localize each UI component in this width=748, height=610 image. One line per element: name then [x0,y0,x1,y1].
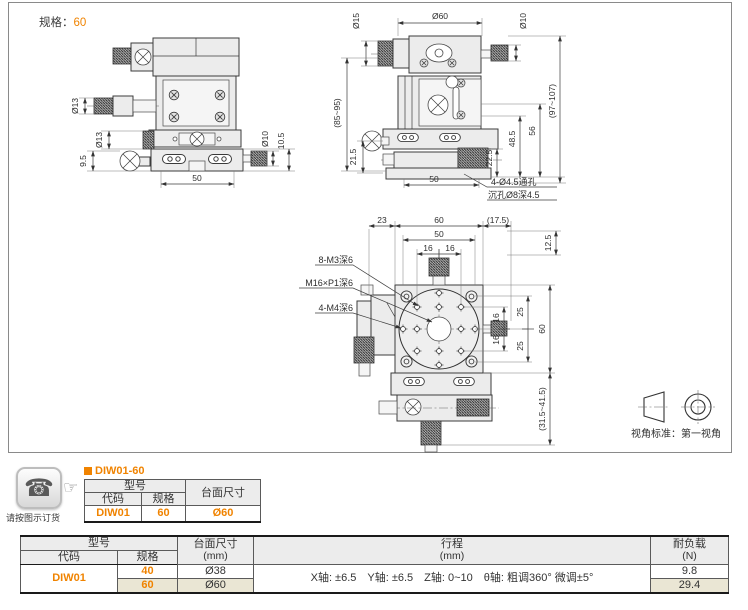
spec-header-travel-text: 行程 [441,538,463,550]
dim-12-5: 12.5 [543,234,553,251]
drawing-area: 规格：60 [8,2,732,453]
order-header-size: 台面尺寸 [186,480,261,506]
travel-value: X轴: ±6.5 Y轴: ±6.5 Z轴: 0~10 θ轴: 粗调360° 微调… [254,564,651,593]
order-spec-value: 60 [142,506,186,522]
phone-order-icon: ☎ [16,467,62,509]
spec-header-code: 代码 [21,550,118,564]
part-number-title: DIW01-60 [84,465,145,477]
dim-16-c: 16 [491,313,501,323]
dim-16-d: 16 [491,335,501,345]
dim-dia13-lower: Ø13 [94,132,104,148]
spec-table: 型号 台面尺寸 (mm) 行程 (mm) 耐负载 (N) 代码 规格 DIW01… [20,535,729,594]
front-view: Ø60 Ø15 Ø10 (85~95) 21.5 50 [332,11,566,200]
dim-60-right: 60 [537,324,547,334]
spec-header-model: 型号 [21,536,178,550]
dim-50-front: 50 [429,174,439,184]
dim-48-5: 48.5 [507,130,517,147]
dim-60-top: 60 [434,215,444,225]
table-row: DIW01 40 Ø38 X轴: ±6.5 Y轴: ±6.5 Z轴: 0~10 … [21,564,729,579]
order-header-model: 型号 [85,480,186,493]
note-m16: M16×P1深6 [305,278,353,288]
spec-header-travel: 行程 (mm) [254,536,651,564]
note-counterbore: 沉孔Ø8深4.5 [488,190,540,200]
spec-header-size: 台面尺寸 (mm) [178,536,254,564]
spec-header-load: 耐负载 (N) [651,536,729,564]
dim-16-a: 16 [423,243,433,253]
spec-code-value: DIW01 [21,564,118,593]
note-through-hole: 4-Ø4.5通孔 [491,177,537,187]
dim-23: 23 [377,215,387,225]
dim-22-5: 22.5 [484,149,494,166]
dim-dia10-front: Ø10 [518,13,528,29]
dim-25-b: 25 [515,341,525,351]
spec-header-size-unit: (mm) [203,550,228,562]
dim-31-5-41-5: (31.5~41.5) [537,387,547,431]
dim-16-b: 16 [445,243,455,253]
spec-header-size-text: 台面尺寸 [194,538,238,550]
dim-56: 56 [527,126,537,136]
load-9-8: 9.8 [651,564,729,579]
dim-85-95: (85~95) [332,98,342,128]
telephone-icon: ☎ [24,474,54,503]
dim-dia10-side: Ø10 [260,131,270,147]
view-standard-value: 第一视角 [681,427,721,440]
order-code-value: DIW01 [85,506,142,522]
dim-25-a: 25 [515,307,525,317]
dim-21-5: 21.5 [348,148,358,165]
order-size-value: Ø60 [186,506,261,522]
note-m4: 4-M4深6 [318,303,353,313]
spec-header-spec: 规格 [118,550,178,564]
catalog-page: { "drawing_area": { "spec_label": "规格：",… [0,0,748,610]
load-29-4: 29.4 [651,579,729,594]
dim-dia60: Ø60 [432,11,448,21]
spec-header-travel-unit: (mm) [440,550,465,562]
view-standard-label: 视角标准： [631,427,681,440]
spec-header-load-text: 耐负载 [673,538,706,550]
dim-50-top: 50 [434,229,444,239]
first-angle-projection: 视角标准： 第一视角 [631,390,721,440]
dim-97-107: (97~107) [547,84,557,118]
bullet-icon [84,467,92,475]
technical-drawing: Ø13 Ø13 9.5 50 Ø10 10.5 [9,3,733,454]
dim-17-5: (17.5) [487,215,509,225]
order-header-code: 代码 [85,493,142,506]
dim-dia13-upper: Ø13 [70,98,80,114]
top-view: 23 60 (17.5) 50 16 16 12.5 [299,215,561,452]
cone-front-view-icon [681,390,715,424]
spec-header-load-unit: (N) [682,550,697,562]
dim-dia15: Ø15 [351,13,361,29]
note-m3: 8-M3深6 [318,255,353,265]
pointing-hand-icon: ☞ [63,478,78,498]
order-header-spec: 规格 [142,493,186,506]
dim-50-side: 50 [192,173,202,183]
order-instruction: 请按图示订货 [6,511,84,524]
part-number: DIW01-60 [95,465,145,477]
dim-9-5: 9.5 [78,155,88,167]
spec-60: 60 [118,579,178,594]
order-table: 型号 台面尺寸 代码 规格 DIW01 60 Ø60 [84,479,261,523]
size-60: Ø60 [178,579,254,594]
side-view: Ø13 Ø13 9.5 50 Ø10 10.5 [70,38,295,188]
size-38: Ø38 [178,564,254,579]
dim-10-5: 10.5 [276,132,286,149]
spec-40: 40 [118,564,178,579]
